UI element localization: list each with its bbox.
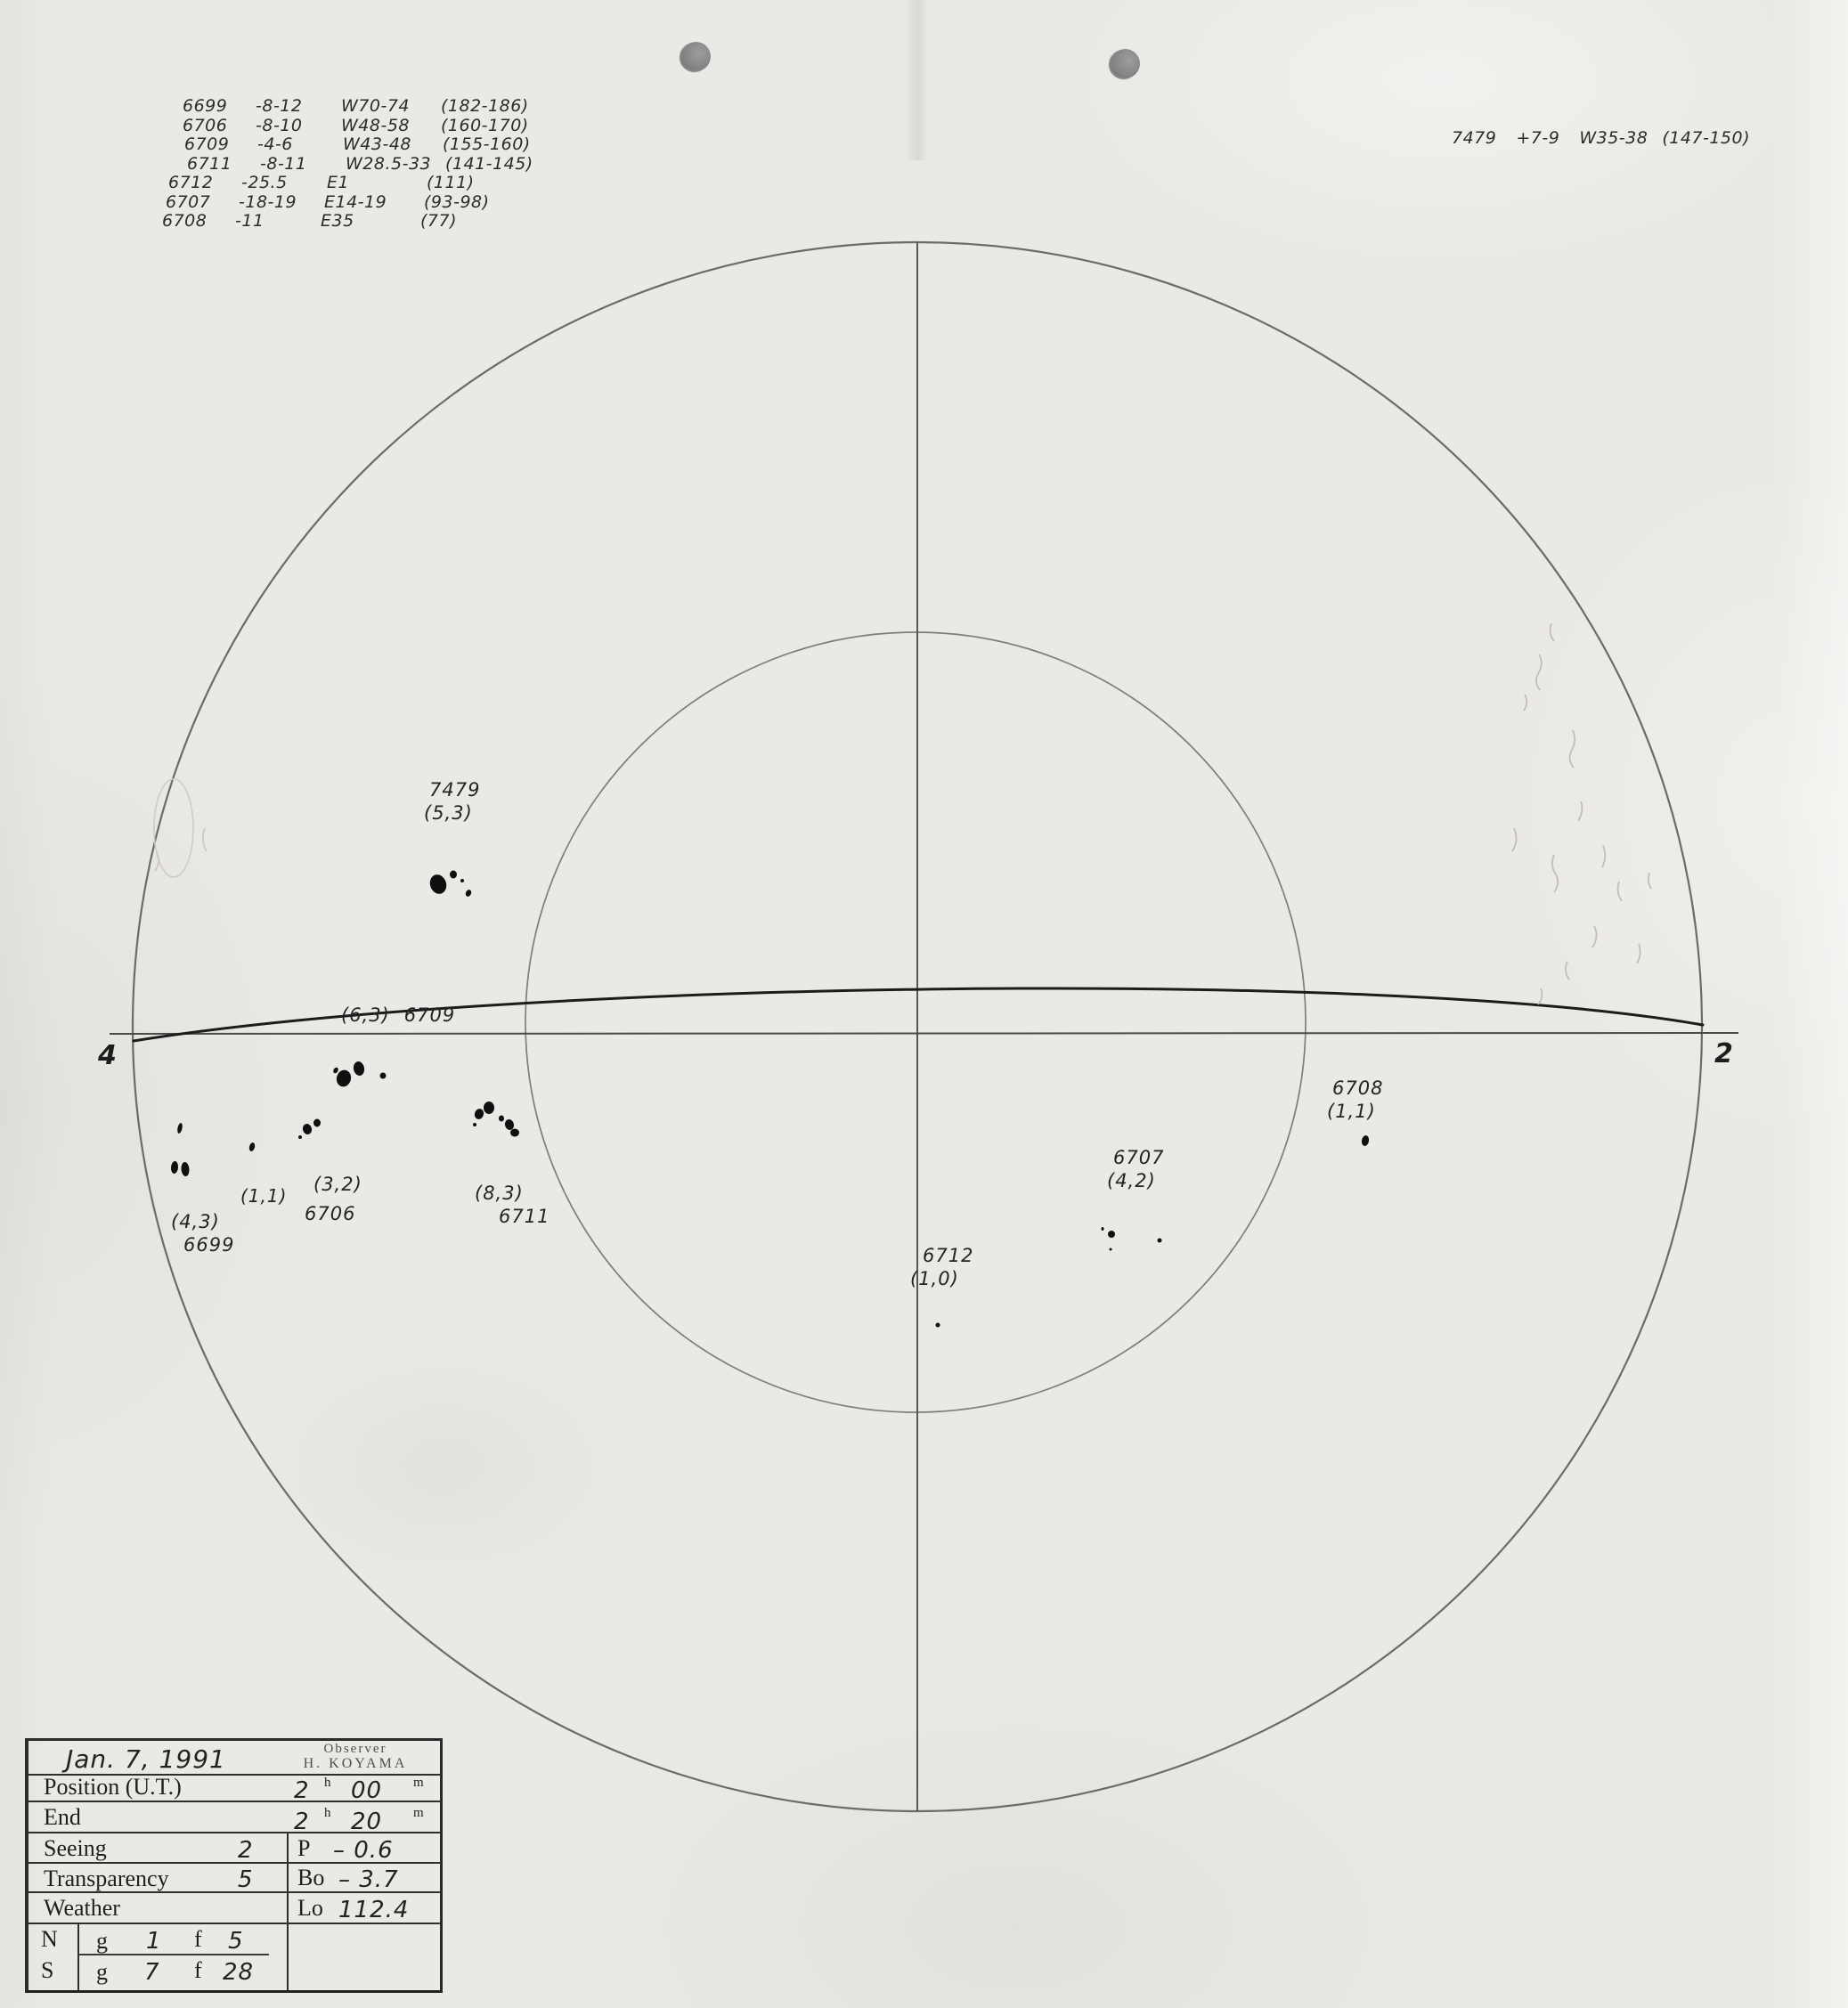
south-f-value: 28	[223, 1959, 254, 1986]
group-label-6707-counts: (4,2)	[1107, 1170, 1156, 1191]
form-row-transparency: Transparency 5 Bo – 3.7	[28, 1864, 440, 1893]
sunspot-6711	[473, 1123, 476, 1126]
sunspot-6706	[298, 1135, 302, 1139]
sunspot-6699	[170, 1161, 178, 1175]
group-label-6709: (6,3) 6709	[341, 1004, 455, 1026]
sunspot-6711	[499, 1116, 504, 1122]
group-label-solo-counts: (1,1)	[240, 1185, 287, 1207]
transparency-value: 5	[238, 1866, 254, 1893]
minute-unit: m	[413, 1776, 424, 1791]
seeing-value: 2	[238, 1837, 254, 1864]
sunspot-6706	[302, 1123, 313, 1135]
group-label-6712-counts: (1,0)	[910, 1268, 959, 1289]
group-label-6711-id: 6711	[499, 1206, 550, 1227]
sunspot-6709	[380, 1073, 387, 1079]
sunspot-6709	[353, 1061, 366, 1077]
sunspot-7479	[460, 879, 464, 882]
sunspot-6711	[473, 1108, 485, 1121]
lo-label: Lo	[297, 1895, 323, 1922]
south-label: S	[41, 1957, 53, 1984]
group-label-6708-counts: (1,1)	[1327, 1101, 1376, 1122]
inner-grid-circle	[525, 632, 1306, 1412]
observation-form: Jan. 7, 1991 Observer H. KOYAMA Position…	[25, 1738, 443, 1993]
bo-value: – 3.7	[338, 1866, 399, 1893]
end-hour: 2	[294, 1809, 310, 1835]
date-value: Jan. 7, 1991	[66, 1744, 226, 1774]
lo-value: 112.4	[338, 1897, 409, 1923]
form-row-north-counts: N g 1 f 5	[28, 1924, 440, 1954]
observer-label: Observer	[289, 1742, 422, 1757]
group-label-6706-id: 6706	[305, 1203, 355, 1224]
position-label: Position (U.T.)	[44, 1774, 182, 1801]
sunspot-6708	[1361, 1134, 1370, 1146]
group-label-6712-id: 6712	[923, 1245, 973, 1266]
form-row-position: Position (U.T.) 2 h 00 m	[28, 1776, 440, 1802]
sunspot-7479	[465, 889, 473, 898]
sunspot-solo	[248, 1142, 256, 1151]
observation-sheet: 6699 -8-12 W70-74 (182-186) 6706 -8-10 W…	[0, 0, 1848, 2008]
axis-label-west: 4	[98, 1040, 117, 1071]
form-row-weather: Weather Lo 112.4	[28, 1893, 440, 1924]
sunspot-6709	[332, 1067, 339, 1075]
group-label-7479-counts: (5,3)	[424, 802, 473, 824]
axis-label-east: 2	[1714, 1038, 1733, 1069]
sunspot-6707	[1158, 1239, 1162, 1243]
end-minute: 20	[351, 1809, 382, 1835]
f-label: f	[194, 1926, 202, 1953]
group-label-6707-id: 6707	[1113, 1147, 1164, 1168]
sunspot-6707	[1108, 1231, 1115, 1238]
south-g-value: 7	[144, 1959, 160, 1986]
f-label: f	[194, 1957, 202, 1984]
group-label-6709-id: 6709	[404, 1004, 455, 1026]
north-g-value: 1	[146, 1928, 162, 1955]
sunspot-6707	[1102, 1227, 1104, 1231]
north-label: N	[41, 1926, 58, 1953]
position-hour: 2	[294, 1777, 310, 1804]
sunspot-6707	[1110, 1248, 1112, 1251]
sunspot-6712	[936, 1323, 940, 1328]
g-label: g	[96, 1959, 108, 1986]
sunspots-layer	[170, 871, 1370, 1328]
sunspot-7479	[427, 873, 449, 897]
group-label-6706-counts: (3,2)	[313, 1174, 362, 1195]
group-label-6699-id: 6699	[183, 1234, 234, 1256]
weather-label: Weather	[44, 1895, 120, 1922]
group-label-6699-counts: (4,3)	[171, 1211, 220, 1232]
sun-disk-drawing	[0, 0, 1848, 2008]
g-label: g	[96, 1928, 108, 1955]
form-row-south-counts: S g 7 f 28	[28, 1955, 440, 1987]
observer-name: H. KOYAMA	[289, 1756, 422, 1772]
hour-unit: h	[324, 1776, 331, 1791]
form-row-seeing: Seeing 2 P – 0.6	[28, 1833, 440, 1864]
sunspot-6699	[181, 1162, 190, 1177]
form-column-divider	[287, 1833, 289, 1990]
bo-label: Bo	[297, 1865, 324, 1891]
position-minute: 00	[351, 1777, 382, 1804]
group-label-7479-id: 7479	[429, 779, 480, 801]
sunspot-7479	[450, 871, 457, 879]
form-row-end: End 2 h 20 m	[28, 1802, 440, 1833]
observer-block: Observer H. KOYAMA	[289, 1742, 422, 1772]
group-label-6708-id: 6708	[1332, 1077, 1383, 1099]
form-ns-divider	[77, 1924, 79, 1990]
group-label-6711-counts: (8,3)	[475, 1183, 524, 1204]
transparency-label: Transparency	[44, 1866, 169, 1892]
faculae-sketch-marks	[154, 623, 1651, 1004]
hour-unit: h	[324, 1806, 331, 1821]
minute-unit: m	[413, 1806, 424, 1821]
north-f-value: 5	[228, 1928, 244, 1955]
horizontal-axis	[110, 1033, 1738, 1034]
p-label: P	[297, 1835, 310, 1862]
end-label: End	[44, 1804, 81, 1831]
sunspot-6699	[176, 1123, 183, 1134]
group-label-6709-counts: (6,3)	[341, 1004, 390, 1026]
p-value: – 0.6	[333, 1837, 394, 1864]
seeing-label: Seeing	[44, 1835, 107, 1862]
form-row-date: Jan. 7, 1991 Observer H. KOYAMA	[28, 1741, 440, 1776]
sunspot-6711	[484, 1102, 494, 1114]
sunspot-6706	[313, 1119, 321, 1127]
sunspot-6711	[510, 1129, 519, 1137]
form-ns-row-divider	[77, 1954, 269, 1955]
